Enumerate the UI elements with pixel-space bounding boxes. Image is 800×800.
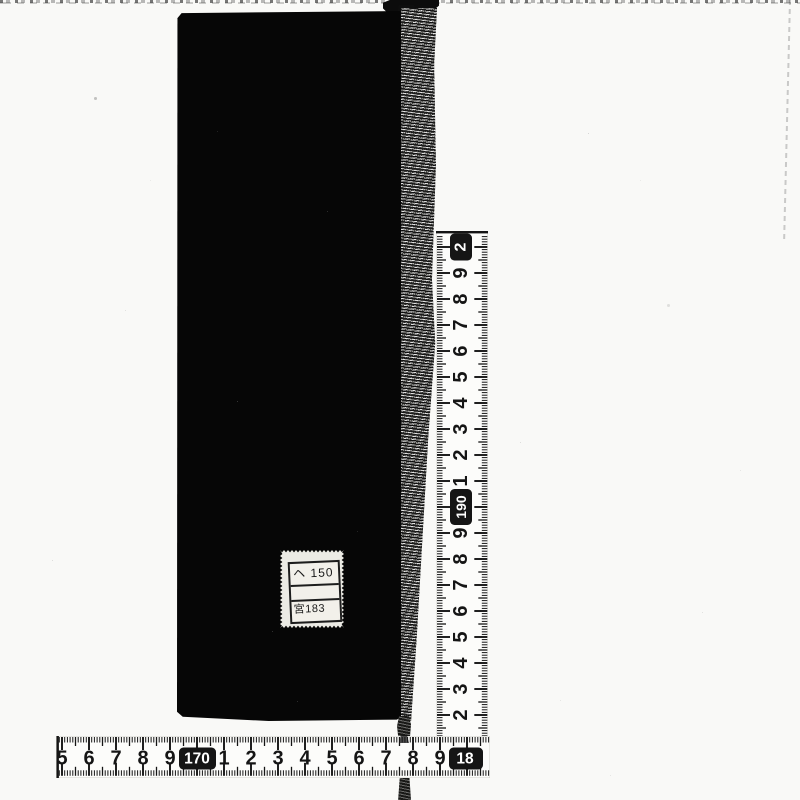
svg-text:9: 9 <box>450 267 472 278</box>
label-sticker: ヘ 150 宮183 <box>280 550 344 628</box>
svg-text:1: 1 <box>450 475 472 486</box>
svg-text:9: 9 <box>164 748 175 770</box>
svg-text:5: 5 <box>450 371 472 382</box>
svg-text:170: 170 <box>184 751 210 768</box>
svg-text:8: 8 <box>450 553 472 564</box>
svg-text:5: 5 <box>450 631 472 642</box>
svg-text:1: 1 <box>218 748 229 770</box>
svg-text:3: 3 <box>450 423 472 434</box>
svg-text:4: 4 <box>299 748 311 770</box>
svg-text:8: 8 <box>137 748 148 770</box>
svg-text:7: 7 <box>450 579 472 590</box>
vertical-tape-measure: 298765432119098765432 <box>436 231 488 778</box>
svg-text:2: 2 <box>450 449 472 460</box>
scanned-photo: ヘ 150 宮183 298765432119098765432 5678917… <box>0 0 800 800</box>
horizontal-tape-measure: 5678917012345678918 <box>56 736 490 778</box>
sticker-table: ヘ 150 宮183 <box>288 560 343 624</box>
svg-text:7: 7 <box>110 748 121 770</box>
svg-text:8: 8 <box>407 748 418 770</box>
svg-text:18: 18 <box>456 751 474 768</box>
svg-text:3: 3 <box>450 683 472 694</box>
svg-text:6: 6 <box>353 748 364 770</box>
sticker-row-3-text: 宮183 <box>294 603 326 616</box>
svg-text:2: 2 <box>450 709 472 720</box>
svg-text:7: 7 <box>450 319 472 330</box>
svg-text:4: 4 <box>450 397 472 409</box>
svg-text:8: 8 <box>450 293 472 304</box>
svg-text:9: 9 <box>450 527 472 538</box>
svg-text:3: 3 <box>272 748 283 770</box>
svg-text:5: 5 <box>326 748 337 770</box>
svg-text:2: 2 <box>453 242 470 251</box>
sticker-row-1-text: ヘ 150 <box>293 565 334 581</box>
svg-text:7: 7 <box>380 748 391 770</box>
svg-text:4: 4 <box>450 657 472 669</box>
sticker-row-3: 宮183 <box>291 598 340 618</box>
svg-text:9: 9 <box>434 748 445 770</box>
svg-text:6: 6 <box>83 748 94 770</box>
book-fore-edge-texture <box>401 8 437 721</box>
sticker-row-1: ヘ 150 <box>290 562 339 585</box>
scan-artifact-right-line <box>783 0 791 240</box>
svg-text:6: 6 <box>450 345 472 356</box>
svg-text:5: 5 <box>56 748 67 770</box>
book-surface-specks <box>177 11 178 12</box>
svg-text:2: 2 <box>245 748 256 770</box>
scan-noise-speckles <box>0 0 1 1</box>
svg-text:190: 190 <box>453 495 469 519</box>
svg-text:6: 6 <box>450 605 472 616</box>
